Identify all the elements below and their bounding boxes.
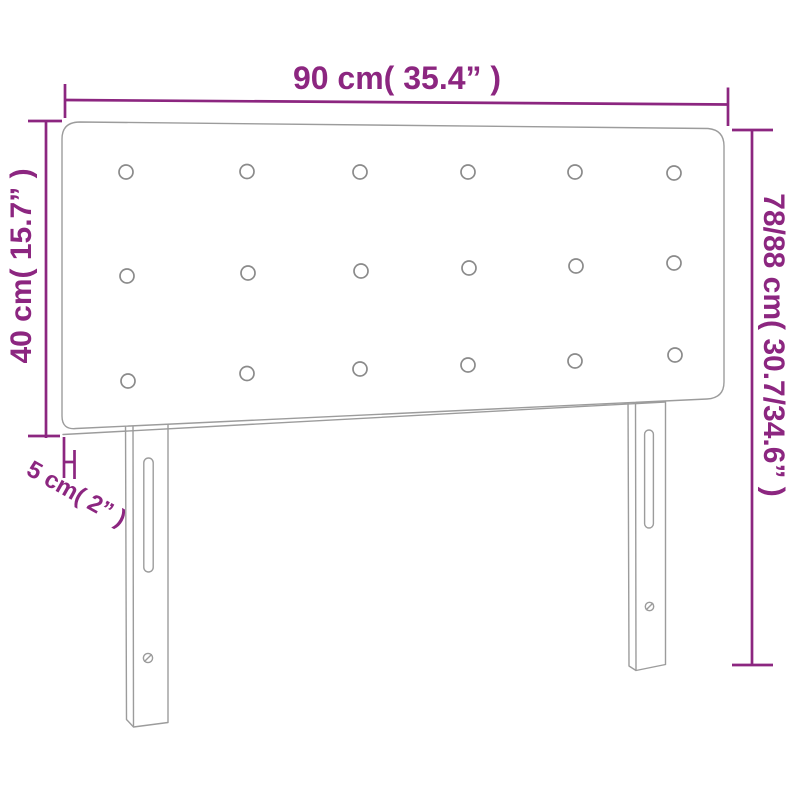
tufting-button	[668, 348, 682, 362]
tufting-button	[461, 358, 475, 372]
tufting-button	[462, 261, 476, 275]
product-outline-group	[62, 122, 724, 727]
diagram-canvas: 90 cm( 35.4” ) 40 cm( 15.7” ) 78/88 cm( …	[0, 0, 800, 800]
right-leg	[628, 394, 666, 671]
left-leg-side-edge	[133, 422, 134, 726]
tufting-button	[354, 264, 368, 278]
tufting-button	[667, 166, 681, 180]
right-leg-body	[628, 394, 666, 671]
left-leg	[126, 418, 169, 727]
headboard-panel	[62, 122, 724, 429]
tufting-button	[241, 266, 255, 280]
tufting-button	[353, 165, 367, 179]
total-height-dimension-label: 78/88 cm( 30.7/34.6” )	[757, 193, 790, 497]
width-dimension-main-line	[65, 100, 728, 105]
depth-dimension-label: 5 cm( 2” )	[22, 456, 131, 533]
left-leg-body	[126, 418, 169, 727]
width-dimension-label: 90 cm( 35.4” )	[293, 60, 501, 96]
tufting-button	[121, 374, 135, 388]
tufting-button	[240, 165, 254, 179]
tufting-button	[569, 259, 583, 273]
tufting-button	[119, 165, 133, 179]
tufting-button	[667, 256, 681, 270]
tufting-button	[568, 354, 582, 368]
panel-height-dimension-label: 40 cm( 15.7” )	[5, 168, 38, 363]
tufting-button	[461, 165, 475, 179]
right-leg-side-edge	[636, 398, 637, 670]
tufting-button	[240, 367, 254, 381]
tufting-button	[120, 269, 134, 283]
headboard-dimension-diagram: 90 cm( 35.4” ) 40 cm( 15.7” ) 78/88 cm( …	[0, 0, 800, 800]
tufting-button	[353, 362, 367, 376]
tufting-button	[568, 165, 582, 179]
